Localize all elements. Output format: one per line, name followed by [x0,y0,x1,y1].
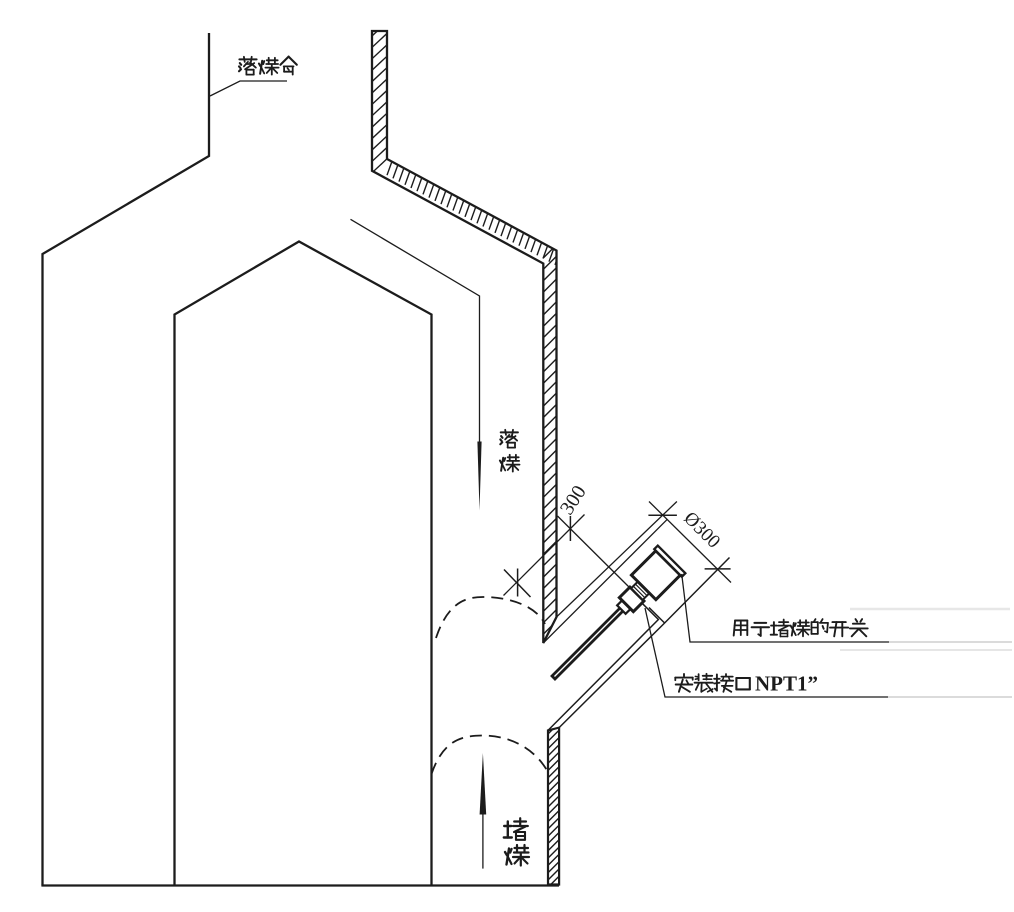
svg-text:NPT1”: NPT1” [755,672,818,696]
